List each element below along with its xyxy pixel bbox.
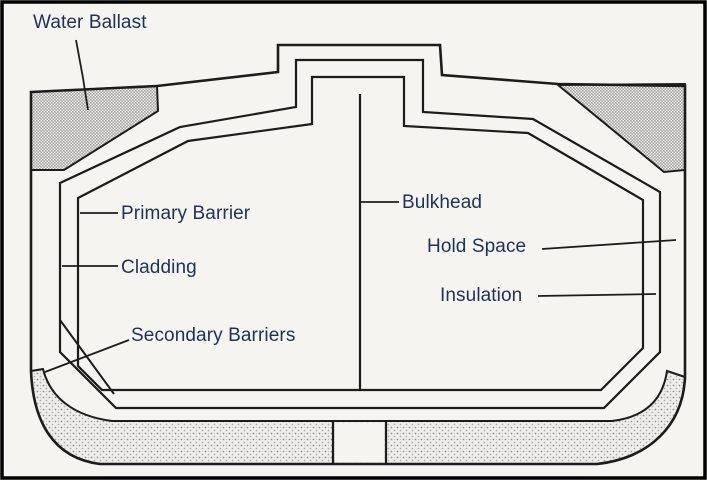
primary-barrier-label: Primary Barrier — [121, 204, 250, 224]
diagram-drawing — [0, 0, 707, 480]
ship-tank-cross-section-diagram: Water Ballast Primary Barrier Cladding S… — [0, 0, 707, 480]
water-ballast-tank-left — [31, 86, 158, 170]
water-ballast-label: Water Ballast — [33, 13, 147, 33]
secondary-barriers-label: Secondary Barriers — [131, 326, 295, 346]
cladding-label: Cladding — [121, 258, 197, 278]
secondary-barrier-corner-plate — [60, 320, 114, 394]
duct-keel-gap — [335, 423, 385, 463]
diagram-frame — [2, 2, 705, 478]
secondary-barriers-leader-line — [45, 340, 129, 372]
bulkhead-label: Bulkhead — [402, 193, 482, 213]
hold-space-leader-line — [542, 240, 676, 249]
hold-space-label: Hold Space — [427, 237, 526, 257]
water-ballast-tank-right — [558, 84, 685, 172]
insulation-label: Insulation — [440, 286, 522, 306]
insulation-leader-line — [538, 294, 656, 296]
